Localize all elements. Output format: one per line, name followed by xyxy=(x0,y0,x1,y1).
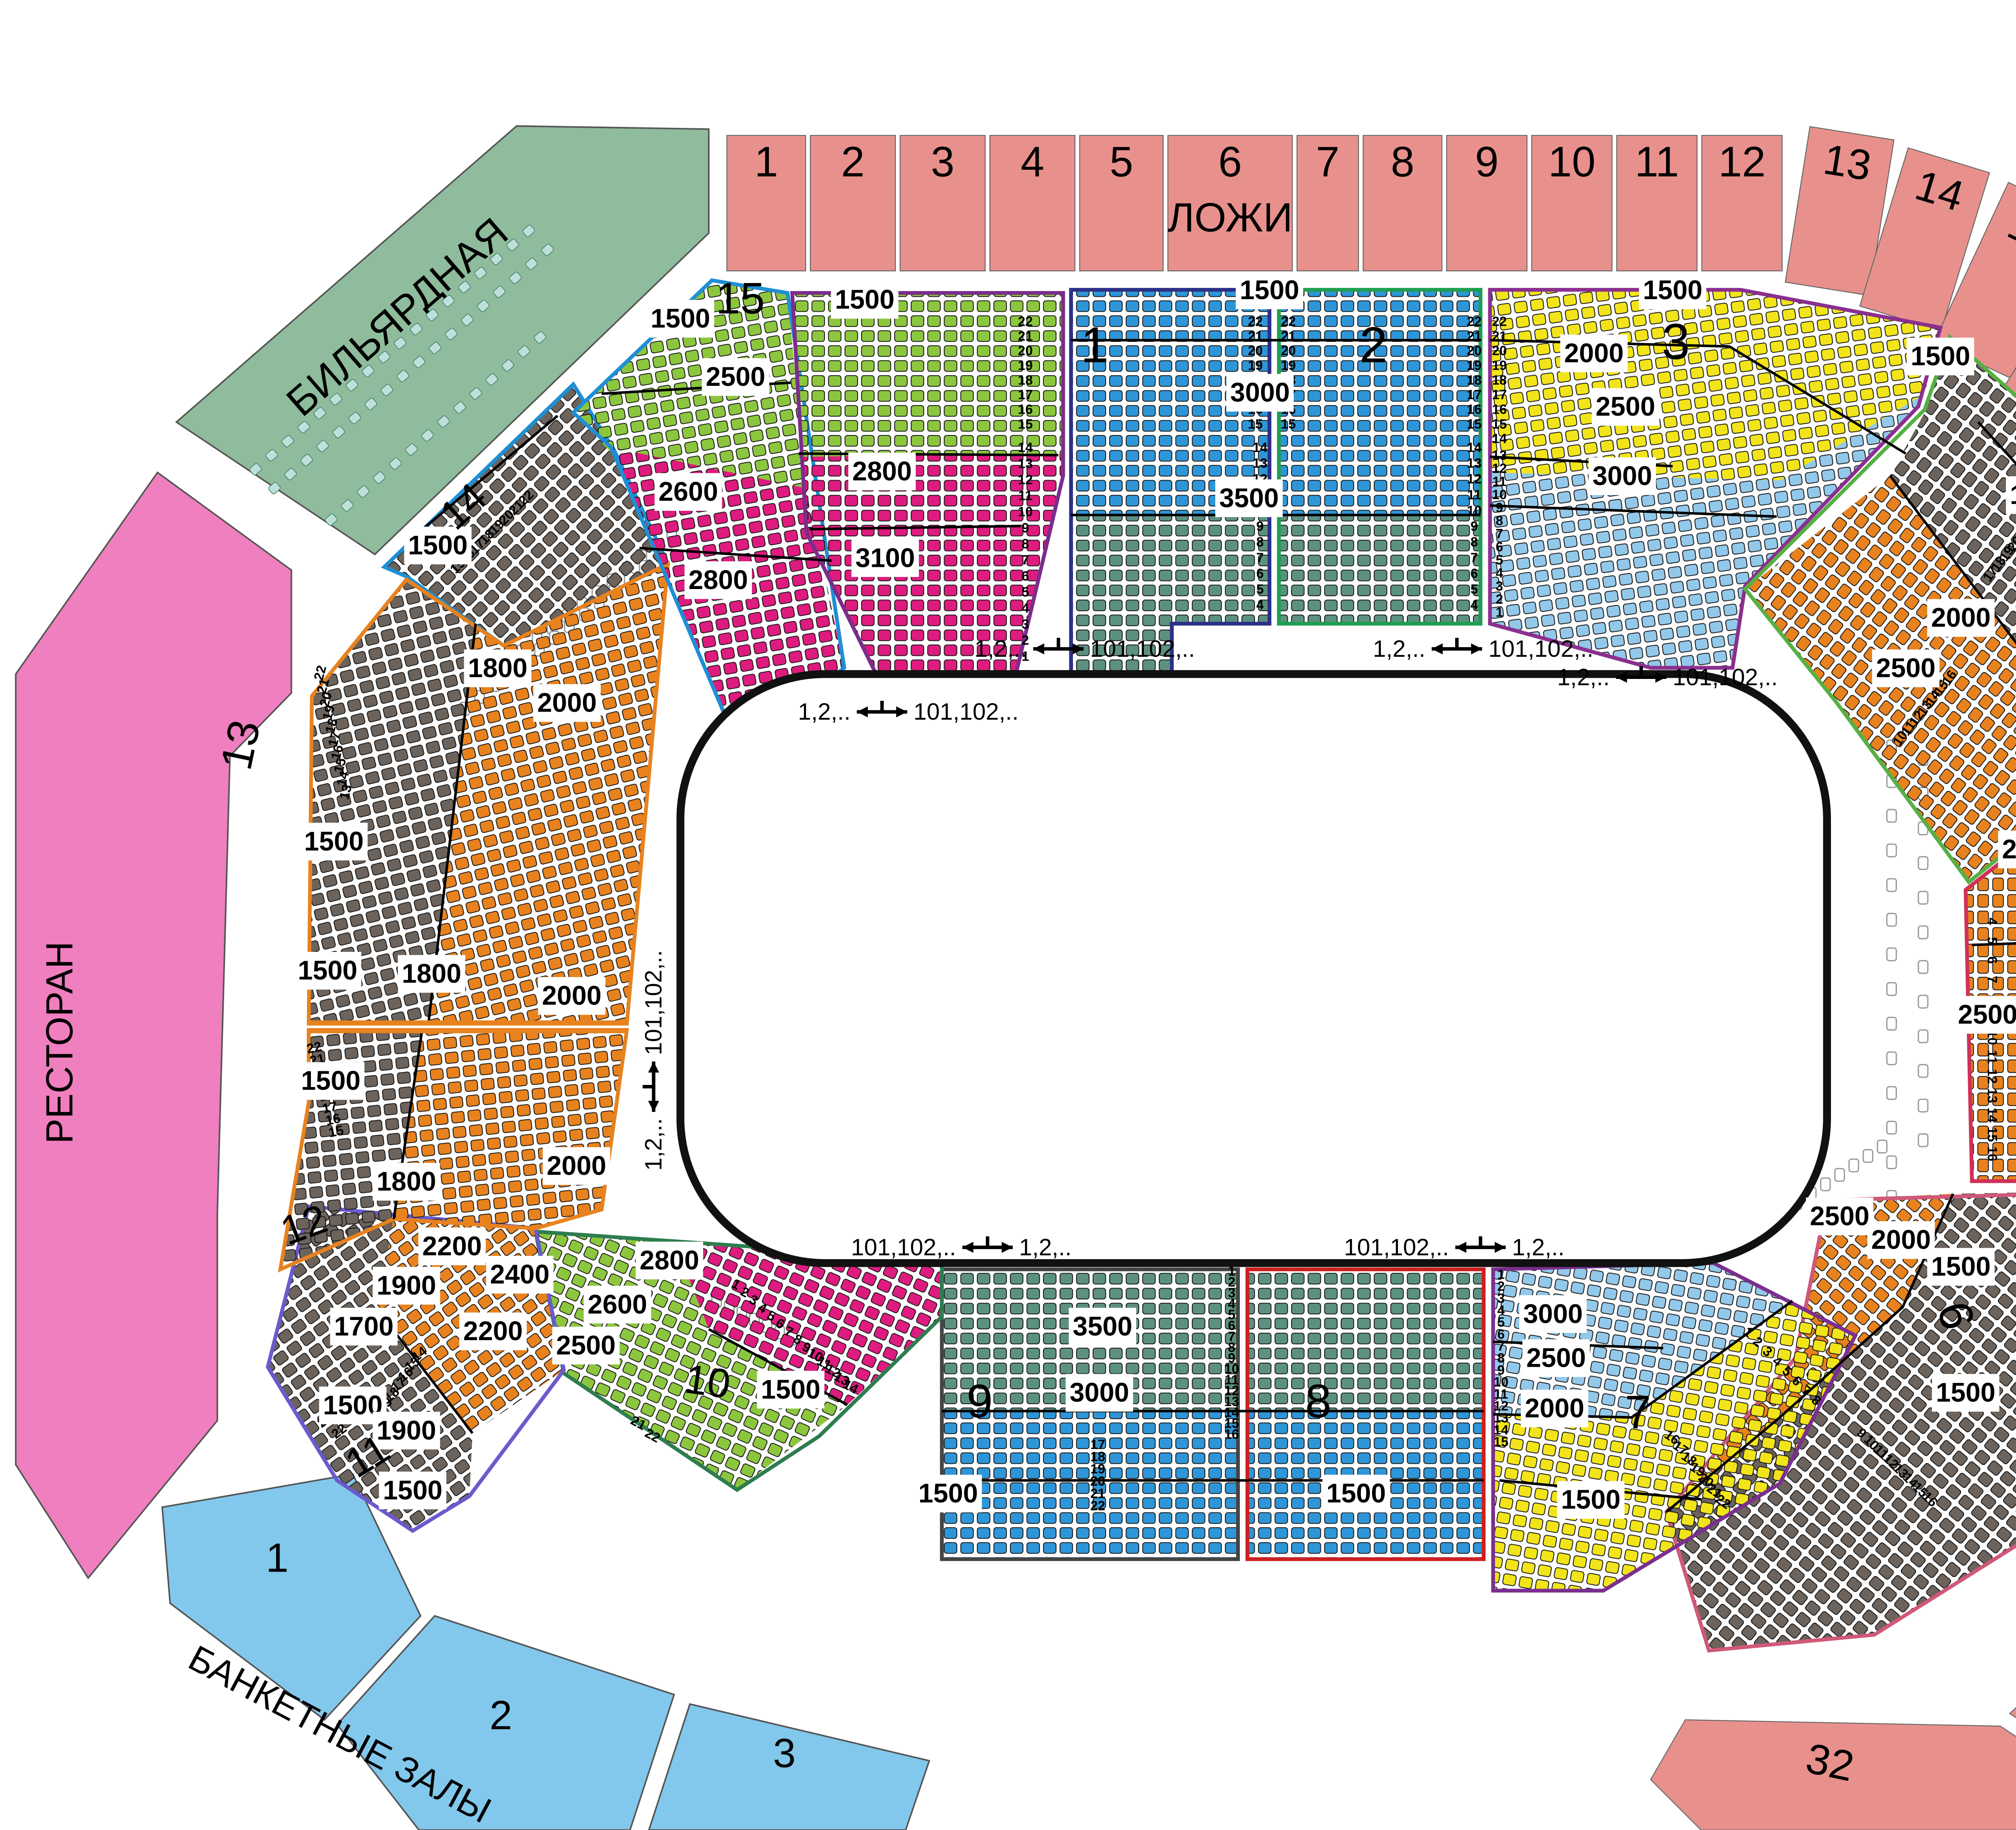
row-number: 14 xyxy=(1253,440,1268,455)
price-label: 2800 xyxy=(636,1242,703,1280)
arrow-left-text: 101,102,.. xyxy=(851,1234,956,1260)
row-number: 11 xyxy=(1985,1050,1999,1064)
sector-number: 3 xyxy=(1662,314,1690,370)
label: 1500 xyxy=(298,956,358,986)
label: 2000 xyxy=(2002,835,2016,864)
arrow-right-text: 101,102,.. xyxy=(641,950,667,1056)
row-number: 8 xyxy=(1256,535,1264,550)
label: 1800 xyxy=(402,959,461,989)
price-label: 2400 xyxy=(486,1256,553,1294)
row-number: 17 xyxy=(1018,387,1033,402)
standing-spot xyxy=(1887,879,1896,891)
standing-spot xyxy=(1887,1121,1896,1134)
label: 1500 xyxy=(761,1375,821,1405)
standing-spot xyxy=(1877,1140,1887,1153)
loggia-box-number: 11 xyxy=(1635,139,1679,186)
arena-svg: БИЛЬЯРДНАЯРЕСТОРАН123БАНКЕТНЫЕ ЗАЛЫ12345… xyxy=(0,0,2016,1830)
row-number: 22 xyxy=(1090,1499,1105,1514)
price-label: 1500 xyxy=(1322,1475,1390,1513)
label: 1500 xyxy=(2010,480,2016,510)
price-label: 2500 xyxy=(1872,650,1939,687)
row-number: 9 xyxy=(1256,519,1264,534)
label: 2200 xyxy=(422,1231,482,1261)
arrow-left-text: 1,2,.. xyxy=(641,1118,667,1170)
arrow-right-text: 101,102,.. xyxy=(914,699,1019,725)
row-number: 21 xyxy=(1248,329,1263,344)
loggia-box-number: 13 xyxy=(1820,136,1874,190)
row-number: 16 xyxy=(1985,1146,1999,1161)
sector-8[interactable] xyxy=(1248,1269,1484,1559)
sector-number: 10 xyxy=(682,1355,733,1407)
row-number: 16 xyxy=(1018,402,1033,417)
row-number: 18 xyxy=(1018,373,1033,388)
label: 1500 xyxy=(1561,1485,1621,1515)
restaurant-label: РЕСТОРАН xyxy=(38,941,81,1144)
label: 2000 xyxy=(547,1151,606,1181)
row-number: 11 xyxy=(1018,489,1032,504)
row-number: 10 xyxy=(1018,504,1033,519)
label: 2600 xyxy=(658,477,718,507)
row-number: 13 xyxy=(1467,456,1482,471)
label: 1500 xyxy=(918,1479,978,1509)
arrow-right-text: 1,2,.. xyxy=(1512,1234,1564,1260)
standing-spot xyxy=(1918,995,1928,1008)
row-number: 4 xyxy=(1470,598,1478,613)
sector-13[interactable] xyxy=(309,564,668,1024)
price-label: 1500 xyxy=(1927,1248,1995,1286)
row-number: 22 xyxy=(1467,314,1482,329)
standing-spot xyxy=(1887,1052,1896,1064)
row-number: 1 xyxy=(1496,605,1503,620)
label: 2800 xyxy=(852,456,912,486)
sector-number: 7 xyxy=(1625,1386,1651,1439)
label: 2800 xyxy=(688,565,748,595)
row-number: 17 xyxy=(1492,387,1507,402)
standing-spot xyxy=(1918,926,1928,939)
price-label: 3000 xyxy=(1226,374,1293,412)
row-number: 12 xyxy=(1018,473,1033,487)
banquet-hall-number: 1 xyxy=(266,1534,288,1580)
arena-seating-map: БИЛЬЯРДНАЯРЕСТОРАН123БАНКЕТНЫЕ ЗАЛЫ12345… xyxy=(0,0,2016,1830)
standing-spot xyxy=(1887,914,1896,926)
price-label: 1500 xyxy=(1907,337,1974,375)
row-number: 16 xyxy=(1467,402,1482,417)
price-label: 1700 xyxy=(330,1308,398,1346)
price-label: 2000 xyxy=(533,684,601,722)
sector-seats-teal xyxy=(1248,1269,1484,1411)
standing-spot xyxy=(1918,1030,1928,1043)
price-label: 1500 xyxy=(379,1472,446,1509)
row-number: 22 xyxy=(1281,314,1296,329)
loggia-box-number: 2 xyxy=(841,139,865,186)
label: 2000 xyxy=(1871,1225,1931,1255)
loggia-box-number: 7 xyxy=(1316,139,1340,186)
price-label: 2500 xyxy=(552,1327,620,1365)
row-number: 19 xyxy=(1018,358,1033,373)
row-number: 7 xyxy=(1022,553,1029,568)
row-number: 6 xyxy=(1022,569,1029,584)
row-number: 5 xyxy=(1985,937,1999,944)
label: 1500 xyxy=(1643,275,1703,305)
label: 2500 xyxy=(1595,392,1655,422)
row-number: 20 xyxy=(1281,344,1296,358)
loggia-label: ЛОЖИ xyxy=(1168,194,1293,240)
label: 1800 xyxy=(377,1167,436,1197)
price-label: 1500 xyxy=(294,952,361,990)
arrow-right-text: 101,102,.. xyxy=(1090,636,1195,662)
price-label: 1500 xyxy=(914,1475,982,1513)
row-number: 12 xyxy=(1467,472,1482,487)
standing-spot xyxy=(1821,1178,1830,1191)
arrow-left-text: 101,102,.. xyxy=(1344,1234,1449,1260)
price-label: 1900 xyxy=(373,1267,440,1305)
numbering-arrow: 1,2,..101,102,.. xyxy=(641,950,667,1171)
loggia-box-number: 6 xyxy=(1218,139,1242,186)
row-number: 7 xyxy=(1470,551,1478,566)
arrow-right-text: 101,102,.. xyxy=(1488,636,1593,662)
row-number: 14 xyxy=(1467,440,1482,455)
label: 1500 xyxy=(835,285,895,315)
label: 1500 xyxy=(1326,1479,1386,1509)
price-label: 1800 xyxy=(373,1163,440,1201)
price-label: 1800 xyxy=(398,955,465,993)
price-label: 2000 xyxy=(1560,335,1628,373)
row-number: 8 xyxy=(1470,535,1478,550)
row-number: 15 xyxy=(327,1123,345,1141)
loggia-box-number: 8 xyxy=(1391,139,1414,186)
price-label: 1800 xyxy=(464,650,531,687)
label: 2200 xyxy=(463,1316,523,1346)
row-number: 4 xyxy=(1985,918,1999,925)
price-label: 3100 xyxy=(852,539,919,577)
row-number: 4 xyxy=(1256,598,1264,613)
price-label: 1500 xyxy=(1557,1481,1624,1519)
row-number: 19 xyxy=(1467,358,1482,373)
row-number: 19 xyxy=(1248,358,1263,373)
row-number: 19 xyxy=(1281,358,1296,373)
sector-number: 15 xyxy=(716,274,765,323)
price-label: 3500 xyxy=(1069,1308,1136,1346)
standing-spot xyxy=(1887,1017,1896,1030)
standing-spot xyxy=(1849,1159,1858,1172)
price-label: 2000 xyxy=(1521,1390,1588,1428)
price-label: 1500 xyxy=(647,300,714,338)
price-label: 1500 xyxy=(297,1062,364,1100)
arrow-right-text: 101,102,.. xyxy=(1672,664,1778,690)
standing-spot xyxy=(1863,1150,1872,1162)
standing-spot xyxy=(1918,1134,1928,1147)
price-label: 2500 xyxy=(1592,388,1659,426)
price-label: 2000 xyxy=(1867,1221,1935,1259)
row-number: 21 xyxy=(1018,329,1033,344)
arrow-left-text: 1,2,.. xyxy=(1373,636,1425,662)
row-number: 16 xyxy=(1224,1427,1239,1442)
standing-spot xyxy=(1918,961,1928,973)
price-label: 2500 xyxy=(1522,1339,1590,1377)
row-number: 15 xyxy=(1467,417,1482,432)
label: 2000 xyxy=(1931,603,1991,633)
row-number: 15 xyxy=(1493,1435,1508,1450)
price-label: 3000 xyxy=(1589,457,1656,495)
row-number: 7 xyxy=(1985,976,1999,983)
label: 3000 xyxy=(1070,1378,1129,1408)
loggia-box-number: 5 xyxy=(1110,139,1133,186)
label: 2500 xyxy=(706,362,765,392)
standing-spot xyxy=(1918,1099,1928,1112)
row-number: 15 xyxy=(1248,417,1263,432)
price-label: 1500 xyxy=(1639,271,1706,309)
row-number: 6 xyxy=(1256,566,1264,581)
sector-seats-teal xyxy=(1279,515,1481,624)
row-number: 6 xyxy=(1985,956,1999,964)
price-label: 1500 xyxy=(300,823,368,861)
numbering-arrow: 1,2,..101,102,.. xyxy=(1373,636,1593,662)
row-number: 20 xyxy=(1018,344,1033,358)
arrow-left-text: 1,2,.. xyxy=(1557,664,1610,690)
banquet-hall-number: 3 xyxy=(773,1730,796,1776)
standing-spot xyxy=(1918,891,1928,904)
row-number: 18 xyxy=(1467,373,1482,388)
row-number: 5 xyxy=(1022,585,1029,600)
row-number: 13 xyxy=(1253,456,1268,471)
row-number: 15 xyxy=(1492,417,1507,432)
row-number: 11 xyxy=(1467,487,1481,502)
label: 2500 xyxy=(1876,654,1936,683)
label: 3000 xyxy=(1593,461,1652,491)
row-number: 21 xyxy=(1492,329,1507,344)
row-number: 15 xyxy=(1018,417,1033,432)
row-number: 18 xyxy=(1492,373,1507,388)
arrow-left-text: 1,2,.. xyxy=(975,636,1027,662)
standing-spot xyxy=(1887,1087,1896,1099)
label: 1500 xyxy=(651,304,710,334)
label: 1500 xyxy=(304,827,364,856)
row-number: 13 xyxy=(1018,456,1033,471)
price-label: 2000 xyxy=(538,977,605,1015)
label: 2000 xyxy=(1525,1394,1585,1424)
label: 2800 xyxy=(639,1245,699,1275)
rink xyxy=(681,674,1827,1263)
row-number: 13 xyxy=(1985,1088,1999,1103)
sector-number: 8 xyxy=(1305,1375,1331,1428)
label: 1700 xyxy=(334,1312,394,1342)
sector-number: 1 xyxy=(1081,317,1109,373)
label: 1900 xyxy=(377,1271,436,1301)
row-number: 6 xyxy=(1470,566,1478,581)
price-label: 3000 xyxy=(1066,1374,1133,1412)
row-number: 14 xyxy=(1492,431,1507,446)
row-number: 20 xyxy=(1467,344,1482,358)
row-number: 22 xyxy=(1018,314,1033,329)
row-number: 9 xyxy=(1022,520,1029,535)
row-number: 9 xyxy=(1470,519,1478,534)
price-label: 2500 xyxy=(1954,996,2016,1034)
row-number: 21 xyxy=(1467,329,1482,344)
label: 1800 xyxy=(468,654,528,683)
price-label: 2600 xyxy=(584,1286,651,1324)
label: 2000 xyxy=(542,981,602,1011)
label: 3500 xyxy=(1073,1312,1133,1342)
label: 2500 xyxy=(1527,1343,1586,1373)
banquet-hall-number: 2 xyxy=(489,1692,512,1738)
standing-spot xyxy=(1887,810,1896,822)
row-number: 16 xyxy=(1492,402,1507,417)
row-number: 21 xyxy=(1281,329,1296,344)
label: 3500 xyxy=(1219,483,1279,513)
label: 1900 xyxy=(377,1416,436,1445)
row-number: 20 xyxy=(1492,344,1507,358)
label: 1500 xyxy=(301,1066,360,1096)
price-label: 1500 xyxy=(1236,271,1303,309)
row-number: 10 xyxy=(1467,503,1482,518)
price-label: 2600 xyxy=(654,473,722,511)
standing-spot xyxy=(1887,1156,1896,1168)
loggia-box-number: 9 xyxy=(1475,139,1499,186)
row-number: 8 xyxy=(1022,537,1029,552)
standing-spot xyxy=(1887,948,1896,961)
price-label: 2800 xyxy=(848,453,916,491)
row-number: 14 xyxy=(1985,1108,1999,1122)
price-label: 3000 xyxy=(1519,1295,1587,1333)
row-number: 7 xyxy=(1256,551,1264,566)
arrow-left-text: 1,2,.. xyxy=(798,699,850,725)
loggia-box-number: 12 xyxy=(1718,139,1766,186)
sector-number: 2 xyxy=(1360,317,1388,373)
price-label: 1500 xyxy=(757,1371,824,1409)
loggia-box-number: 4 xyxy=(1020,139,1044,186)
standing-spot xyxy=(1887,983,1896,995)
label: 1500 xyxy=(1240,275,1300,305)
price-label: 1500 xyxy=(2006,476,2016,514)
sector-number: 13 xyxy=(211,716,270,774)
label: 1500 xyxy=(1911,341,1970,371)
label: 3100 xyxy=(855,543,915,573)
label: 2000 xyxy=(1564,338,1624,368)
label: 3000 xyxy=(1523,1299,1583,1329)
price-label: 1500 xyxy=(1932,1374,1999,1412)
label: 1500 xyxy=(1931,1252,1991,1282)
row-number: 22 xyxy=(1248,314,1263,329)
sector-number: 9 xyxy=(966,1375,993,1428)
loggia-box-number: 10 xyxy=(1548,139,1595,186)
standing-spot xyxy=(1918,1065,1928,1077)
row-number: 14 xyxy=(1018,440,1033,455)
price-label: 2200 xyxy=(459,1312,527,1350)
row-number: 22 xyxy=(1492,314,1507,329)
row-number: 5 xyxy=(1256,582,1264,597)
price-label: 2500 xyxy=(1806,1197,1873,1235)
label: 2000 xyxy=(537,688,597,718)
row-number: 12 xyxy=(1985,1069,1999,1084)
row-number: 17 xyxy=(1467,387,1482,402)
label: 2500 xyxy=(1810,1201,1870,1231)
arrow-right-text: 1,2,.. xyxy=(1019,1234,1071,1260)
price-label: 1500 xyxy=(831,281,898,319)
standing-spot xyxy=(1887,844,1896,857)
label: 3000 xyxy=(1230,378,1290,408)
label: 2500 xyxy=(1958,1000,2016,1030)
price-label: 2500 xyxy=(702,358,769,396)
row-number: 15 xyxy=(1281,417,1296,432)
price-label: 2000 xyxy=(1998,831,2016,868)
row-number: 19 xyxy=(1492,358,1507,373)
price-label: 3500 xyxy=(1215,479,1283,517)
row-number: 15 xyxy=(1985,1127,1999,1142)
row-number: 20 xyxy=(1248,344,1263,358)
standing-spot xyxy=(1918,857,1928,869)
standing-spot xyxy=(1835,1168,1844,1181)
label: 2400 xyxy=(490,1260,550,1290)
price-label: 2000 xyxy=(1927,599,1995,637)
price-label: 2200 xyxy=(418,1228,485,1266)
label: 2600 xyxy=(587,1290,647,1320)
label: 1500 xyxy=(1936,1378,1995,1408)
price-label: 2000 xyxy=(543,1147,610,1185)
price-label: 2800 xyxy=(685,561,752,599)
label: 2500 xyxy=(556,1330,616,1360)
loggia-box-number: 3 xyxy=(931,139,955,186)
row-number: 3 xyxy=(1022,617,1029,632)
sector-seats-blue xyxy=(942,1411,1238,1559)
loggia-box-number: 1 xyxy=(754,139,778,186)
label: 1500 xyxy=(383,1476,443,1505)
row-number: 4 xyxy=(1022,601,1029,616)
loggia-box-number: 32 xyxy=(1802,1734,1858,1790)
row-number: 5 xyxy=(1470,582,1478,597)
